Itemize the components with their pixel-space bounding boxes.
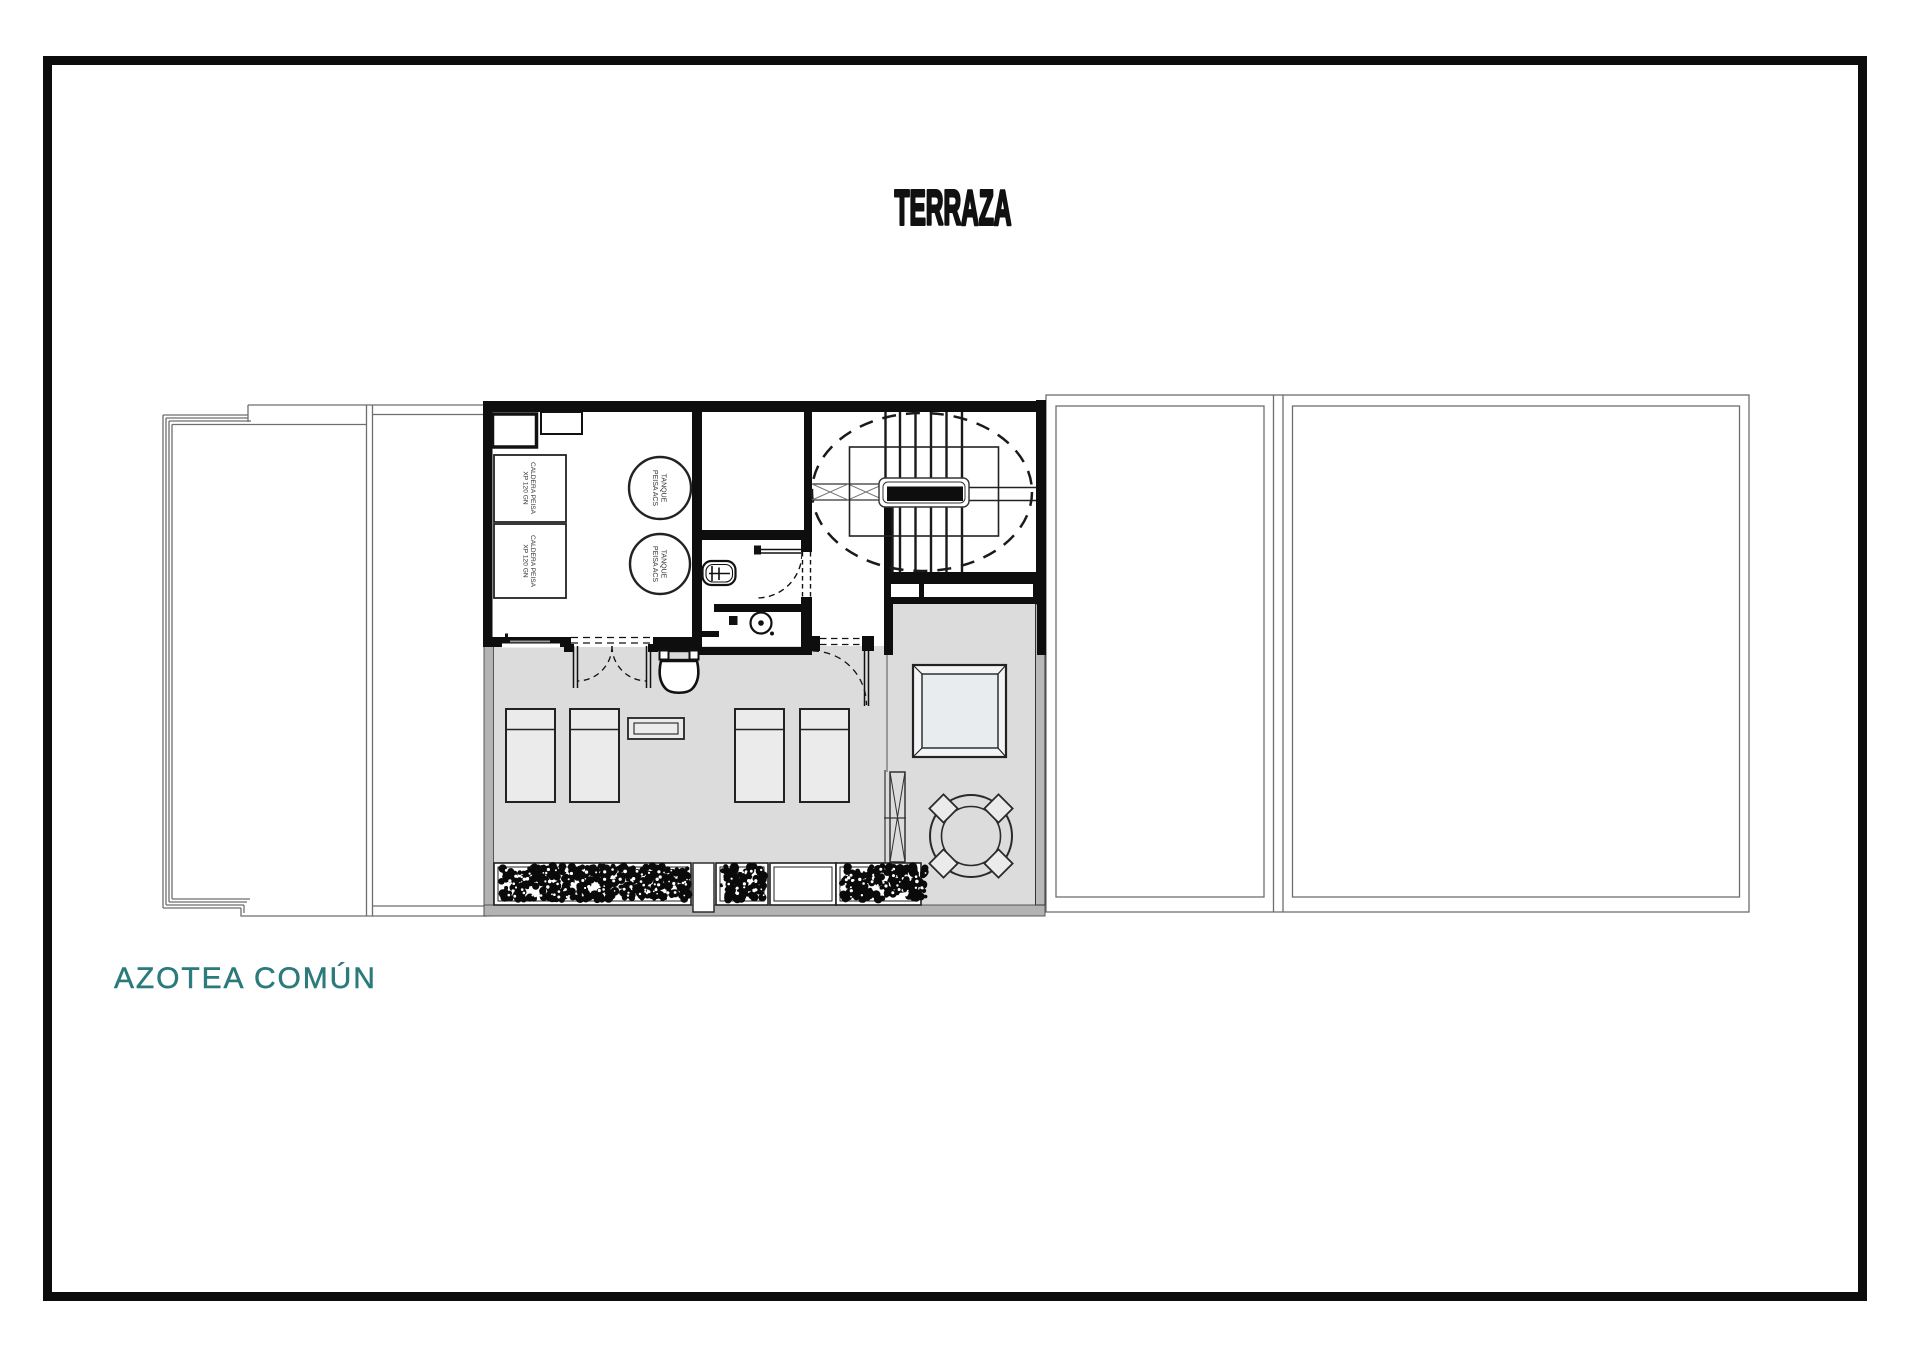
svg-text:TERRAZA: TERRAZA — [895, 181, 1012, 235]
svg-text:TANQUEPEISA ACS: TANQUEPEISA ACS — [651, 546, 666, 583]
svg-text:AZOTEA COMÚN: AZOTEA COMÚN — [114, 962, 377, 995]
svg-text:TANQUEPEISA ACS: TANQUEPEISA ACS — [651, 470, 666, 507]
